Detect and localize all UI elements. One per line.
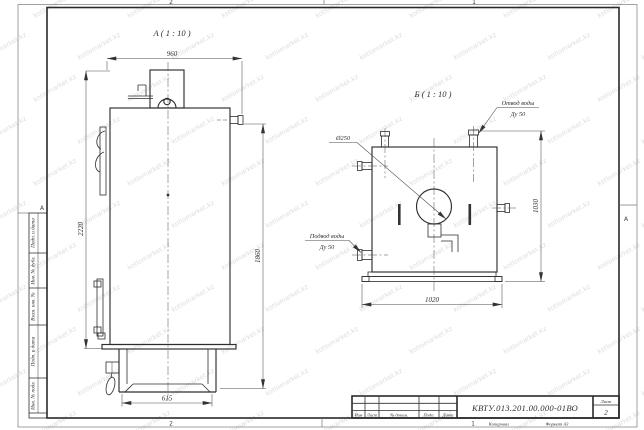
note-inlet-line2: Ду 50 [319, 244, 336, 251]
dim-2220-text: 2220 [77, 222, 85, 237]
gusset-mark-left [398, 204, 401, 225]
watermark-text: kotlomarket.kz [264, 198, 310, 229]
watermark-text: kotlomarket.kz [546, 30, 592, 61]
watermark-text: kotlomarket.kz [546, 366, 592, 397]
watermark-text: kotlomarket.kz [314, 0, 360, 20]
tb-col-list: Лист [366, 412, 378, 417]
base-plates [362, 272, 502, 282]
watermark-text: kotlomarket.kz [502, 240, 548, 271]
side-label-inv-podl: Инв. № подл. [30, 381, 37, 411]
watermark-text: kotlomarket.kz [32, 324, 78, 355]
top-stub-left [381, 128, 390, 178]
tb-col-podp: Подп. [422, 412, 434, 417]
watermark-text: kotlomarket.kz [358, 198, 404, 229]
watermark-text: kotlomarket.kz [126, 156, 172, 187]
watermark-text: kotlomarket.kz [220, 324, 266, 355]
watermark-text: kotlomarket.kz [358, 282, 404, 313]
lifting-lug [158, 99, 176, 108]
footer-format: Формат А3 [546, 422, 570, 427]
gusset-mark-right [469, 204, 472, 225]
watermark-text: kotlomarket.kz [220, 72, 266, 103]
zone-label-bottom-right: 1 [471, 421, 475, 428]
watermark-text: kotlomarket.kz [76, 114, 122, 145]
note-outlet-line1: Отвод воды [502, 100, 535, 107]
tb-col-ndoc: № докум. [389, 412, 408, 417]
dim-615-text: 615 [162, 395, 173, 403]
dim-1020-text: 1020 [425, 296, 440, 304]
side-label-inv-dubl: Инв. № дубл. [30, 256, 37, 285]
watermark-text: kotlomarket.kz [408, 0, 454, 20]
watermark-text: kotlomarket.kz [640, 30, 644, 61]
watermark-layer: kotlomarket.kzkotlomarket.kzkotlomarket.… [0, 0, 644, 430]
zone-label-top-left: 2 [169, 0, 173, 6]
margin-letter-right: А [624, 216, 629, 223]
zone-label-top-right: 1 [472, 0, 476, 6]
watermark-text: kotlomarket.kz [220, 156, 266, 187]
side-label-podp-2: Подп. и дата [30, 336, 37, 367]
watermark-text: kotlomarket.kz [452, 198, 498, 229]
base-stand [119, 349, 216, 392]
watermark-text: kotlomarket.kz [640, 198, 644, 229]
watermark-text: kotlomarket.kz [408, 240, 454, 271]
view-a-title: А ( 1 : 10 ) [152, 28, 190, 38]
view-b: Б ( 1 : 10 ) [305, 89, 545, 308]
watermark-text: kotlomarket.kz [76, 30, 122, 61]
watermark-text: kotlomarket.kz [408, 156, 454, 187]
watermark-text: kotlomarket.kz [126, 324, 172, 355]
view-b-title: Б ( 1 : 10 ) [414, 89, 452, 99]
watermark-text: kotlomarket.kz [32, 240, 78, 271]
watermark-text: kotlomarket.kz [640, 282, 644, 313]
door-hardware-upper [95, 127, 106, 195]
watermark-text: kotlomarket.kz [358, 30, 404, 61]
watermark-text: kotlomarket.kz [32, 0, 78, 20]
note-inlet-line1: Подвод воды [309, 233, 345, 240]
watermark-text: kotlomarket.kz [170, 282, 216, 313]
watermark-text: kotlomarket.kz [452, 366, 498, 397]
side-stub-upper-left [352, 162, 388, 171]
center-mark-dot [167, 194, 170, 197]
watermark-text: kotlomarket.kz [170, 114, 216, 145]
watermark-text: kotlomarket.kz [32, 156, 78, 187]
watermark-text: kotlomarket.kz [220, 0, 266, 20]
zone-label-bottom-left: 2 [169, 421, 173, 428]
tb-sheet-number: 2 [604, 409, 608, 417]
tb-col-izm: Изм [354, 412, 363, 417]
watermark-text: kotlomarket.kz [502, 324, 548, 355]
tb-designation: КВТУ.013.201.00.000-01ВО [471, 403, 578, 413]
watermark-text: kotlomarket.kz [452, 30, 498, 61]
left-margin-strip: Подп. и дата Инв. № дубл. Взам. инв. № П… [29, 213, 47, 418]
margin-letter-left: А [40, 205, 45, 212]
flue-lower-box [428, 224, 441, 237]
note-flue-dia-text: Ø250 [335, 135, 351, 142]
watermark-text: kotlomarket.kz [0, 114, 28, 145]
side-stub-inlet [352, 250, 388, 261]
drawing-canvas: kotlomarket.kzkotlomarket.kzkotlomarket.… [0, 0, 644, 430]
note-outlet-line2: Ду 50 [510, 111, 527, 118]
view-a: А ( 1 : 10 ) [77, 28, 266, 407]
watermark-text: kotlomarket.kz [170, 198, 216, 229]
watermark-text: kotlomarket.kz [0, 30, 28, 61]
watermark-text: kotlomarket.kz [502, 0, 548, 20]
watermark-text: kotlomarket.kz [264, 30, 310, 61]
boiler-body-outline [110, 108, 230, 345]
watermark-text: kotlomarket.kz [640, 366, 644, 397]
tb-sheet-label: Лист [600, 399, 612, 404]
watermark-text: kotlomarket.kz [264, 114, 310, 145]
watermark-text: kotlomarket.kz [546, 198, 592, 229]
footer-kopiroval: Копировал [488, 422, 510, 427]
sheet-border: 2 1 2 1 А А Копировал Формат А3 [18, 0, 637, 428]
watermark-text: kotlomarket.kz [314, 72, 360, 103]
watermark-text: kotlomarket.kz [502, 156, 548, 187]
dim-960-text: 960 [167, 50, 178, 58]
watermark-text: kotlomarket.kz [452, 282, 498, 313]
watermark-text: kotlomarket.kz [170, 366, 216, 397]
watermark-text: kotlomarket.kz [0, 366, 28, 397]
note-outlet: Отвод воды Ду 50 [479, 100, 540, 134]
door-hardware-lower [94, 279, 105, 339]
watermark-text: kotlomarket.kz [408, 324, 454, 355]
title-block: Изм Лист № докум. Подп. Дата КВТУ.013.20… [352, 396, 619, 418]
watermark-text: kotlomarket.kz [264, 282, 310, 313]
watermark-text: kotlomarket.kz [546, 282, 592, 313]
watermark-text: kotlomarket.kz [640, 114, 644, 145]
side-label-podp-1: Подп. и дата [30, 218, 37, 249]
watermark-text: kotlomarket.kz [126, 0, 172, 20]
dim-1030-text: 1030 [532, 199, 540, 214]
watermark-text: kotlomarket.kz [264, 366, 310, 397]
watermark-text: kotlomarket.kz [126, 240, 172, 271]
watermark-text: kotlomarket.kz [32, 72, 78, 103]
watermark-text: kotlomarket.kz [0, 282, 28, 313]
bottom-flange [102, 345, 236, 350]
watermark-text: kotlomarket.kz [314, 156, 360, 187]
watermark-text: kotlomarket.kz [546, 114, 592, 145]
tb-col-data: Дата [442, 412, 455, 417]
watermark-text: kotlomarket.kz [0, 198, 28, 229]
drawing-sheet: kotlomarket.kzkotlomarket.kzkotlomarket.… [0, 0, 644, 430]
watermark-text: kotlomarket.kz [358, 366, 404, 397]
dim-1860-text: 1860 [254, 249, 262, 264]
sheet-edge [18, 5, 637, 428]
side-label-vzam: Взам. инв. № [31, 292, 37, 321]
body-pipe-stub-right [217, 116, 243, 125]
watermark-text: kotlomarket.kz [314, 324, 360, 355]
dim-615: 615 [122, 394, 212, 407]
